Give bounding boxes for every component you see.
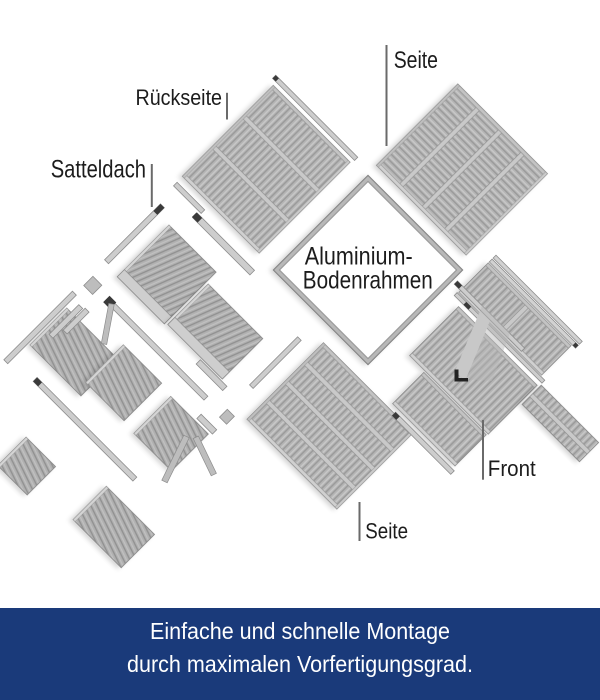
svg-text:Seite: Seite [394, 47, 438, 74]
svg-text:Einfache und schnelle Montage: Einfache und schnelle Montage [150, 618, 450, 644]
svg-text:Front: Front [488, 456, 537, 481]
svg-text:durch maximalen Vorfertigungsg: durch maximalen Vorfertigungsgrad. [127, 651, 473, 677]
svg-text:Seite: Seite [365, 519, 408, 544]
svg-text:Satteldach: Satteldach [51, 156, 146, 184]
svg-text:Rückseite: Rückseite [136, 85, 223, 110]
svg-text:Bodenrahmen: Bodenrahmen [303, 267, 433, 295]
